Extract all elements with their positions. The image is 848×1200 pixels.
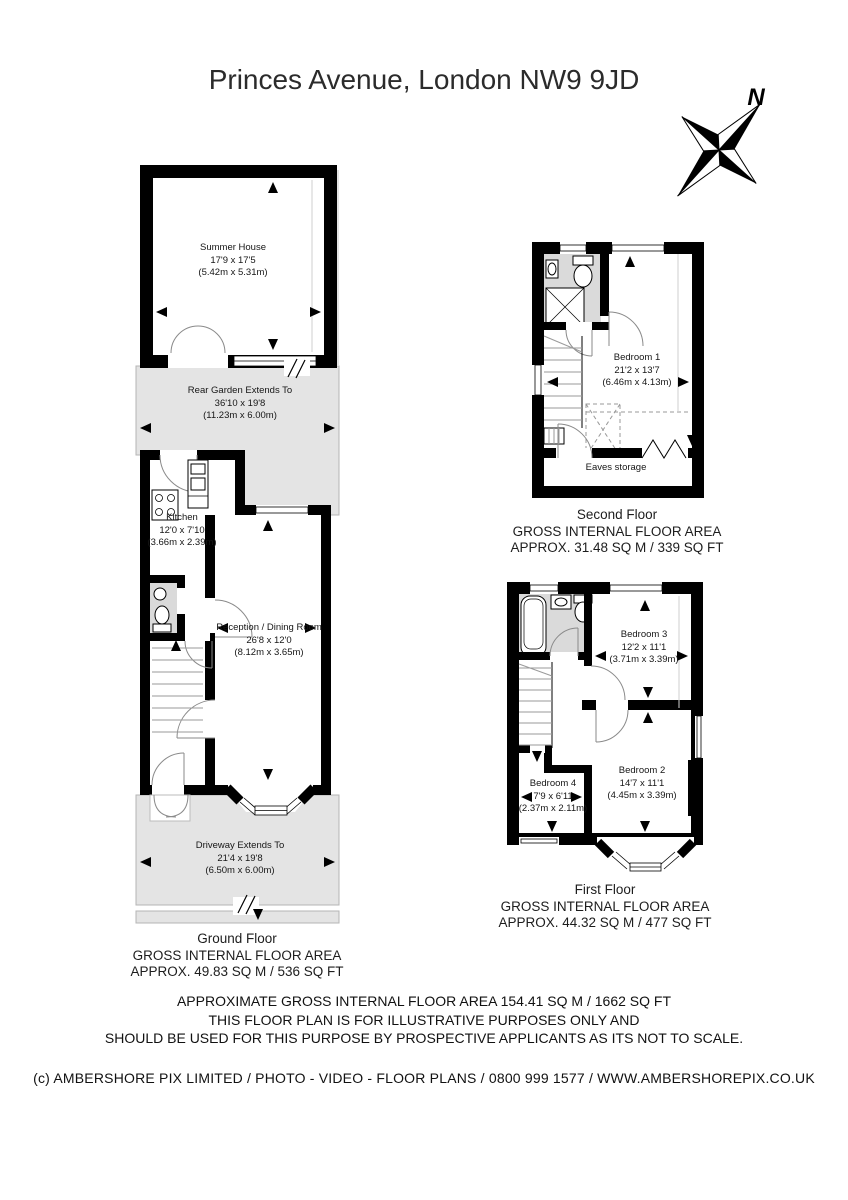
disclaimer-line1: APPROXIMATE GROSS INTERNAL FLOOR AREA 15… — [0, 992, 848, 1011]
room-label-bedroom-4: Bedroom 4 7'9 x 6'11 (2.37m x 2.11m) — [519, 778, 587, 816]
room-name: Reception / Dining Room — [216, 622, 322, 635]
window — [612, 245, 664, 251]
room-dims-m: (5.42m x 5.31m) — [198, 267, 267, 280]
room-dims-m: (11.23m x 6.00m) — [188, 410, 292, 423]
room-dims-m: (3.71m x 3.39m) — [609, 654, 678, 667]
room-label-reception: Reception / Dining Room 26'8 x 12'0 (8.1… — [216, 622, 322, 660]
floor-name: Ground Floor — [130, 931, 343, 948]
copyright-footer: (c) AMBERSHORE PIX LIMITED / PHOTO - VID… — [0, 1070, 848, 1086]
floor-name: Second Floor — [510, 507, 723, 524]
room-name: Driveway Extends To — [196, 840, 285, 853]
room-name: Summer House — [198, 242, 267, 255]
room-dims-ft: 21'4 x 19'8 — [196, 853, 285, 866]
room-label-rear-garden: Rear Garden Extends To 36'10 x 19'8 (11.… — [188, 385, 292, 423]
room-dims-ft: 12'2 x 11'1 — [609, 642, 678, 655]
first-floor-plan — [507, 582, 703, 871]
floor-area-line2: APPROX. 49.83 SQ M / 536 SQ FT — [130, 964, 343, 981]
bathroom-first — [519, 594, 592, 658]
disclaimer: APPROXIMATE GROSS INTERNAL FLOOR AREA 15… — [0, 992, 848, 1048]
room-name: Rear Garden Extends To — [188, 385, 292, 398]
floor-area-line1: GROSS INTERNAL FLOOR AREA — [510, 524, 723, 541]
sink-icon — [154, 588, 166, 600]
disclaimer-line2: THIS FLOOR PLAN IS FOR ILLUSTRATIVE PURP… — [0, 1011, 848, 1030]
room-dims-ft: 14'7 x 11'1 — [607, 778, 676, 791]
room-dims-m: (8.12m x 3.65m) — [216, 647, 322, 660]
room-dims-ft: 21'2 x 13'7 — [602, 365, 671, 378]
room-name: Bedroom 4 — [519, 778, 587, 791]
bathroom-second — [544, 254, 601, 328]
toilet-icon — [574, 265, 592, 287]
window — [521, 839, 557, 843]
window — [530, 585, 558, 591]
room-dims-ft: 26'8 x 12'0 — [216, 635, 322, 648]
floor-area-line2: APPROX. 44.32 SQ M / 477 SQ FT — [498, 915, 711, 932]
window — [697, 716, 701, 758]
toilet-icon — [155, 606, 169, 624]
page-title: Princes Avenue, London NW9 9JD — [209, 64, 640, 96]
disclaimer-line3: SHOULD BE USED FOR THIS PURPOSE BY PROSP… — [0, 1029, 848, 1048]
room-name: Bedroom 3 — [609, 629, 678, 642]
room-label-driveway: Driveway Extends To 21'4 x 19'8 (6.50m x… — [196, 840, 285, 878]
bathtub-icon — [521, 596, 546, 656]
room-dims-ft: 36'10 x 19'8 — [188, 398, 292, 411]
room-label-bedroom-3: Bedroom 3 12'2 x 11'1 (3.71m x 3.39m) — [609, 629, 678, 667]
room-dims-m: (6.46m x 4.13m) — [602, 377, 671, 390]
room-label-summer-house: Summer House 17'9 x 17'5 (5.42m x 5.31m) — [198, 242, 267, 280]
floor-name: First Floor — [498, 882, 711, 899]
room-name: Eaves storage — [586, 462, 647, 475]
room-label-eaves-storage: Eaves storage — [586, 462, 647, 475]
second-floor-label: Second Floor GROSS INTERNAL FLOOR AREA A… — [510, 507, 723, 557]
floor-area-line1: GROSS INTERNAL FLOOR AREA — [130, 948, 343, 965]
window — [256, 507, 308, 513]
room-dims-m: (6.50m x 6.00m) — [196, 865, 285, 878]
floor-area-line2: APPROX. 31.48 SQ M / 339 SQ FT — [510, 540, 723, 557]
room-dims-ft: 7'9 x 6'11 — [519, 791, 587, 804]
ground-floor-label: Ground Floor GROSS INTERNAL FLOOR AREA A… — [130, 931, 343, 981]
compass-north-label: N — [747, 84, 764, 112]
room-name: Kitchen — [147, 512, 216, 525]
window — [560, 245, 586, 251]
compass-icon — [640, 70, 797, 229]
room-dims-ft: 17'9 x 17'5 — [198, 255, 267, 268]
room-dims-m: (4.45m x 3.39m) — [607, 790, 676, 803]
bay-window-first — [597, 837, 694, 871]
kitchen-counter-icon — [188, 460, 208, 508]
first-floor-label: First Floor GROSS INTERNAL FLOOR AREA AP… — [498, 882, 711, 932]
window — [535, 365, 541, 395]
room-dims-m: (2.37m x 2.11m) — [519, 803, 587, 816]
room-label-kitchen: Kitchen 12'0 x 7'10 (3.66m x 2.39m) — [147, 512, 216, 550]
chimney-breast — [688, 760, 703, 816]
room-name: Bedroom 1 — [602, 352, 671, 365]
room-label-bedroom-1: Bedroom 1 21'2 x 13'7 (6.46m x 4.13m) — [602, 352, 671, 390]
floor-area-line1: GROSS INTERNAL FLOOR AREA — [498, 899, 711, 916]
room-dims-m: (3.66m x 2.39m) — [147, 537, 216, 550]
room-dims-ft: 12'0 x 7'10 — [147, 525, 216, 538]
room-label-bedroom-2: Bedroom 2 14'7 x 11'1 (4.45m x 3.39m) — [607, 765, 676, 803]
floor-plan-page: Princes Avenue, London NW9 9JD N Summer … — [0, 0, 848, 1200]
room-name: Bedroom 2 — [607, 765, 676, 778]
window — [610, 585, 662, 591]
